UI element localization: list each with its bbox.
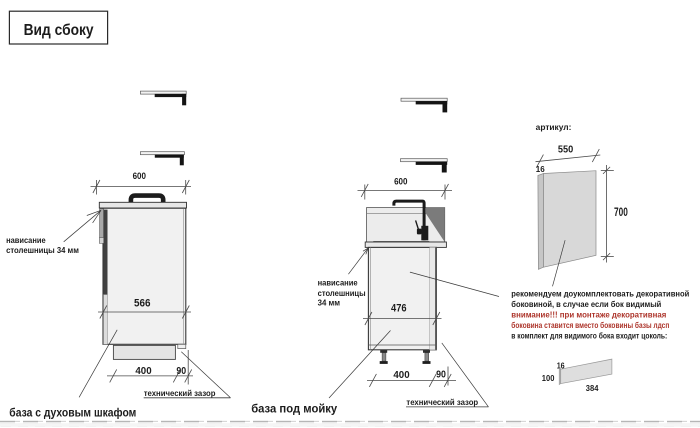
svg-text:артикул:: артикул: [536,123,572,132]
svg-text:нависание: нависание [6,236,46,245]
svg-text:16: 16 [536,165,545,174]
svg-text:34 мм: 34 мм [318,299,341,308]
svg-text:566: 566 [134,298,151,310]
svg-text:боковина ставится вместо боков: боковина ставится вместо боковины базы л… [511,320,669,330]
svg-text:рекомендуем доукомплектовать д: рекомендуем доукомплектовать декоративно… [511,289,689,299]
svg-text:база под мойку: база под мойку [251,401,337,415]
svg-text:база с духовым шкафом: база с духовым шкафом [9,406,136,420]
svg-text:400: 400 [135,366,152,377]
svg-text:384: 384 [586,383,599,393]
svg-text:100: 100 [542,373,555,383]
svg-text:столешницы: столешницы [318,289,366,298]
svg-text:внимание!!! при монтаже декора: внимание!!! при монтаже декоративная [511,310,666,320]
svg-text:600: 600 [133,171,146,181]
svg-text:нависание: нависание [318,279,359,288]
svg-text:технический зазор: технический зазор [144,388,216,398]
svg-text:технический зазор: технический зазор [406,397,478,407]
svg-text:400: 400 [393,370,410,381]
svg-text:боковиной, в случае если бок в: боковиной, в случае если бок видимый [511,299,661,309]
svg-text:90: 90 [436,370,446,381]
svg-text:Вид сбоку: Вид сбоку [24,22,94,39]
svg-text:476: 476 [391,303,407,315]
svg-text:90: 90 [176,366,186,377]
svg-text:550: 550 [558,144,574,156]
svg-text:600: 600 [394,176,407,186]
svg-text:столешницы 34 мм: столешницы 34 мм [6,246,79,255]
svg-text:в комплект для видимого бока в: в комплект для видимого бока входит цоко… [511,331,667,341]
svg-text:700: 700 [614,205,628,219]
